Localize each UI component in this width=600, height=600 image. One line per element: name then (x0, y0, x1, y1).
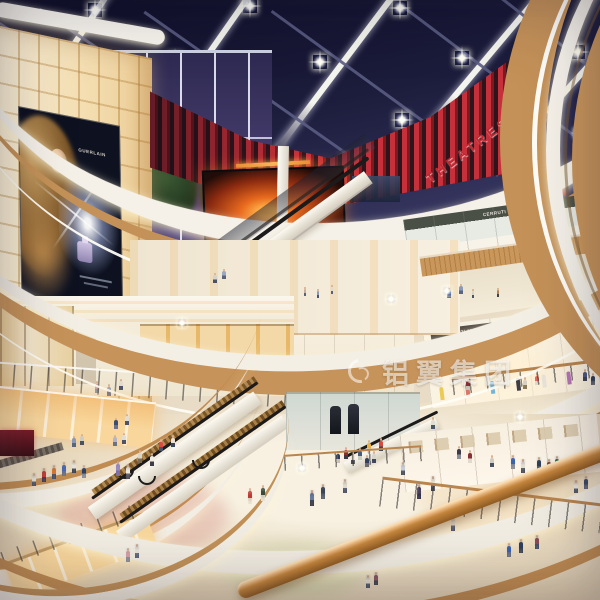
suit-mannequin (348, 404, 359, 434)
cinema-poster-small (0, 430, 34, 456)
mall-atrium-scene: GUERLAIN THEATRES CERRUTI 1881 TAI TAI C… (0, 0, 600, 600)
concourse-back-shops (140, 324, 294, 360)
mannequin (360, 374, 364, 387)
mannequin (317, 374, 321, 387)
ceiling-light (395, 113, 409, 127)
perfume-bottle-cap (82, 236, 88, 244)
mannequin (439, 387, 445, 400)
ceiling-light (571, 45, 585, 59)
suit-mannequin (330, 406, 341, 434)
ceiling-light (243, 0, 257, 13)
billboard-ad: GUERLAIN (18, 106, 123, 323)
sparkle-burst (58, 171, 123, 288)
perfume-bottle (77, 241, 92, 264)
ceiling-light (88, 3, 102, 17)
kenson-wang-sign: KENSON WANG (513, 311, 590, 330)
mannequin (339, 374, 343, 387)
mannequin (381, 374, 385, 387)
mannequin (296, 374, 300, 387)
ceiling-light (393, 1, 407, 15)
ceiling-light (533, 105, 547, 119)
ceiling-light (313, 55, 327, 69)
ceiling-light (533, 0, 547, 13)
ceiling-light (455, 51, 469, 65)
